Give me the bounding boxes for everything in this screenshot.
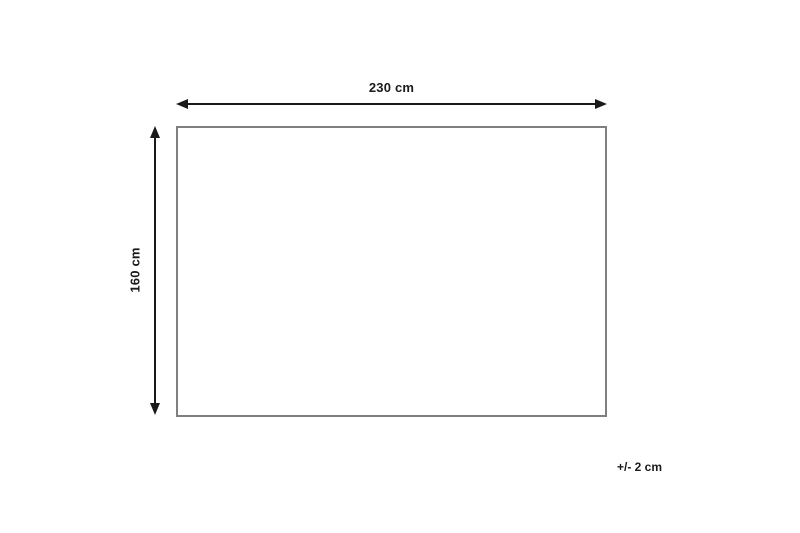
arrow-head-bottom bbox=[150, 403, 160, 415]
width-dimension-label: 230 cm bbox=[176, 80, 607, 95]
width-dimension-arrow-icon bbox=[176, 97, 607, 111]
arrow-head-left bbox=[176, 99, 188, 109]
height-dimension-label: 160 cm bbox=[128, 247, 143, 292]
height-dimension-arrow-icon bbox=[148, 126, 162, 415]
arrow-head-right bbox=[595, 99, 607, 109]
tolerance-label: +/- 2 cm bbox=[617, 460, 662, 474]
dimension-diagram: 230 cm 160 cm +/- 2 cm bbox=[0, 0, 800, 533]
product-outline-rectangle bbox=[176, 126, 607, 417]
arrow-head-top bbox=[150, 126, 160, 138]
